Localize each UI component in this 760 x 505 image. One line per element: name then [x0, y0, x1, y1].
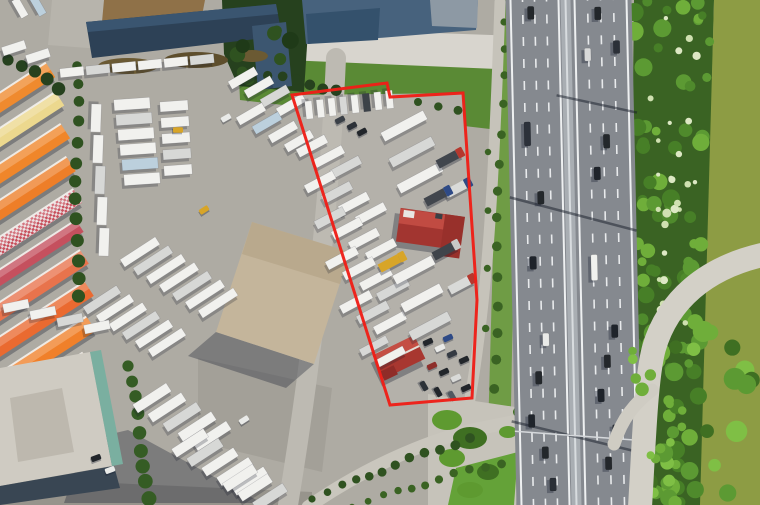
hedge-tree	[73, 115, 84, 126]
hedge-tree	[421, 482, 429, 490]
vehicle-body	[594, 167, 601, 180]
hedge-tree	[308, 495, 315, 502]
highway-vehicle	[602, 457, 612, 472]
highway-vehicle	[608, 325, 618, 340]
hedge-tree	[135, 459, 149, 473]
vehicle-body	[594, 7, 601, 20]
tree	[663, 475, 675, 487]
trailer-body	[99, 228, 110, 256]
highway-vehicle	[532, 371, 542, 386]
tree	[684, 211, 696, 223]
yard-trailer-stack	[119, 157, 158, 174]
vehicle-body	[524, 122, 531, 146]
hedge-tree	[491, 355, 501, 365]
vehicle-body	[605, 457, 612, 470]
highway-vehicle	[524, 6, 534, 21]
tree	[645, 369, 656, 380]
hedge-tree	[133, 426, 146, 439]
tree	[666, 438, 675, 447]
yard-trailer-column	[92, 163, 106, 194]
hedge-tree	[499, 100, 507, 108]
aerial-photo	[0, 0, 760, 505]
vehicle-body	[530, 256, 537, 269]
tree	[656, 207, 661, 212]
property-van-row	[370, 89, 382, 110]
tree	[668, 121, 672, 125]
highway-vehicle	[601, 355, 611, 370]
property-van-row	[313, 97, 325, 118]
tree	[641, 243, 656, 258]
tree	[681, 429, 698, 446]
vegetation-patch	[432, 410, 462, 430]
hedge-tree	[394, 487, 401, 494]
hedge-tree	[378, 468, 387, 477]
vehicle-body	[611, 325, 618, 338]
yard-trailer-stack	[157, 100, 188, 115]
highway-vehicle	[595, 389, 605, 404]
tree	[692, 52, 700, 60]
hedge-tree	[414, 98, 422, 106]
hedge-tree	[305, 80, 316, 91]
hedge-tree	[69, 175, 81, 187]
property-van-row	[336, 94, 348, 115]
trailer-body	[91, 104, 102, 132]
hedge-tree	[70, 212, 83, 225]
building-part	[435, 213, 443, 219]
tree	[647, 451, 655, 459]
tree	[653, 19, 671, 37]
aerial-photo-screenshot	[0, 0, 760, 505]
hedge-tree	[450, 440, 460, 450]
trailer-body	[161, 116, 190, 128]
tree	[648, 95, 654, 101]
vehicle-body	[604, 355, 611, 368]
highway-vehicle	[591, 167, 601, 182]
tree	[685, 81, 696, 92]
tree	[676, 151, 682, 157]
tree	[694, 237, 708, 251]
tree	[669, 340, 682, 353]
hedge-tree	[449, 469, 457, 477]
hedge-tree	[72, 272, 85, 285]
hedge-tree	[481, 463, 490, 472]
hedge-tree	[465, 433, 475, 443]
tree	[667, 426, 679, 438]
highway-vehicle	[591, 7, 601, 22]
trailer-body	[114, 97, 151, 110]
vehicle-body	[537, 191, 544, 204]
yard-trailer-stack	[161, 164, 192, 179]
highway-vehicle	[610, 40, 620, 55]
tree	[656, 173, 660, 177]
hedge-tree	[74, 96, 85, 107]
tree	[679, 123, 693, 137]
tree	[675, 47, 682, 54]
highway-vehicle	[581, 48, 591, 63]
vegetation-patch	[457, 482, 483, 498]
hedge-tree	[134, 444, 148, 458]
hedge-tree	[70, 158, 82, 170]
tree	[662, 6, 671, 15]
hedge-tree	[292, 74, 302, 84]
tree	[692, 134, 709, 151]
vehicle-body	[543, 333, 550, 346]
vehicle-body	[613, 40, 620, 53]
tree	[628, 347, 637, 356]
tree	[643, 176, 656, 189]
hedge-tree	[485, 149, 491, 155]
trailer-body	[164, 164, 193, 176]
blue-warehouse-dark-wing	[306, 8, 380, 44]
tree	[700, 424, 714, 438]
hedge-tree	[324, 488, 332, 496]
tree	[684, 181, 691, 188]
hedge-tree	[126, 376, 138, 388]
highway-vehicle	[534, 191, 544, 206]
hedge-tree	[365, 472, 374, 481]
trailer-body	[122, 157, 159, 170]
hedge-tree	[122, 360, 133, 371]
trailer-body	[118, 127, 155, 140]
highway-vehicle	[547, 478, 557, 493]
hedge-tree	[72, 254, 85, 267]
trailer-body	[97, 197, 108, 225]
vegetation-patch	[499, 426, 517, 438]
vehicle-body	[542, 447, 549, 459]
hedge-tree	[420, 448, 430, 458]
vehicle-body	[550, 478, 557, 491]
hedge-tree	[278, 71, 288, 81]
hedge-tree	[138, 474, 153, 489]
hedge-tree	[435, 445, 445, 455]
hedge-tree	[365, 498, 372, 505]
tree	[236, 39, 250, 53]
tree	[677, 422, 686, 431]
hedge-tree	[72, 290, 85, 303]
hedge-tree	[435, 475, 443, 483]
hedge-tree	[493, 328, 503, 338]
trailer-body	[120, 142, 157, 155]
tree	[662, 209, 671, 218]
vehicle-body	[584, 48, 591, 61]
hedge-tree	[338, 481, 346, 489]
tree	[628, 354, 638, 364]
property-van-row	[301, 98, 313, 119]
vehicle-body	[528, 414, 535, 427]
tree	[693, 321, 714, 342]
tree	[635, 383, 649, 397]
tree	[693, 180, 697, 184]
hedge-tree	[497, 460, 506, 469]
tree	[678, 406, 687, 415]
vehicle-body	[535, 371, 542, 384]
tree	[724, 340, 740, 356]
tree	[687, 342, 701, 356]
yard-trailer-stack	[117, 142, 156, 159]
tree	[665, 363, 684, 382]
tree	[274, 53, 286, 65]
tree	[637, 274, 650, 287]
hedge-tree	[352, 475, 360, 483]
yard-trailer-stack	[115, 127, 154, 144]
tree	[702, 73, 711, 82]
tree	[657, 277, 662, 282]
tree	[655, 443, 665, 453]
tree	[649, 266, 660, 277]
tree	[698, 11, 706, 19]
tree	[676, 0, 691, 15]
highway-vehicle	[527, 256, 537, 271]
tree	[681, 462, 699, 480]
yard-trailer-stack	[160, 148, 191, 163]
tree	[684, 359, 693, 368]
highway-vehicle	[525, 414, 535, 429]
tree	[654, 43, 663, 52]
tree	[637, 137, 649, 149]
vehicle-body	[598, 389, 605, 402]
hedge-tree	[454, 106, 463, 115]
hedge-tree	[465, 465, 474, 474]
blue-warehouse-light-wing	[430, 0, 478, 28]
yard-trailer-column	[88, 101, 102, 132]
hedge-tree	[73, 79, 83, 89]
tree	[638, 257, 647, 266]
tree	[631, 373, 641, 383]
hedge-tree	[485, 207, 492, 214]
hedge-tree	[41, 73, 54, 86]
tree	[656, 138, 661, 143]
vehicle-body	[527, 6, 534, 19]
tree	[685, 118, 692, 125]
trailer-body	[124, 172, 161, 185]
vehicle-body	[591, 254, 598, 280]
tree	[690, 387, 707, 404]
trailer-body	[95, 166, 106, 194]
vehicle-body	[603, 134, 610, 148]
tree	[662, 250, 668, 256]
property-van-row	[359, 91, 371, 112]
hedge-tree	[497, 130, 506, 139]
hedge-tree	[482, 325, 489, 332]
hedge-tree	[493, 272, 503, 282]
highway-vehicle	[540, 333, 550, 348]
car-body	[173, 127, 183, 133]
hedge-tree	[492, 242, 502, 252]
yard-trailer-column	[90, 132, 104, 163]
trailer-body	[163, 148, 192, 160]
tree	[665, 400, 673, 408]
hedge-tree	[434, 102, 442, 110]
tree	[686, 35, 693, 42]
tree	[708, 459, 721, 472]
hedge-tree	[52, 82, 65, 95]
tree	[638, 287, 655, 304]
property-van-row	[347, 92, 359, 113]
hedge-tree	[71, 234, 84, 247]
highway-vehicle	[600, 134, 610, 150]
yard-trailer-column	[94, 194, 108, 225]
tree	[668, 176, 673, 181]
tree	[664, 16, 668, 20]
hedge-tree	[391, 461, 400, 470]
tree	[705, 37, 714, 46]
trailer-body	[116, 112, 153, 125]
trailer-body	[160, 100, 189, 112]
hedge-tree	[489, 384, 499, 394]
hedge-tree	[484, 265, 491, 272]
highway-vehicle	[521, 122, 531, 148]
hedge-tree	[405, 453, 414, 462]
car	[172, 127, 183, 134]
hedge-tree	[495, 160, 504, 169]
hedge-tree	[69, 192, 82, 205]
hedge-tree	[72, 137, 84, 149]
tree	[737, 375, 756, 394]
tree	[687, 481, 704, 498]
yard-trailer-stack	[113, 112, 152, 129]
tree	[661, 221, 668, 228]
highway-vehicle	[588, 254, 598, 282]
tree	[282, 32, 299, 49]
tree	[652, 127, 661, 136]
hedge-tree	[408, 485, 416, 493]
tree	[683, 320, 688, 325]
property-van-row	[324, 95, 336, 116]
hedge-tree	[380, 491, 387, 498]
hedge-tree	[493, 302, 503, 312]
hedge-tree	[29, 65, 41, 77]
yard-trailer-column	[96, 225, 110, 256]
hedge-tree	[492, 213, 501, 222]
tree	[726, 421, 747, 442]
tree	[674, 200, 681, 207]
tree	[634, 58, 652, 76]
tree	[272, 25, 282, 35]
trailer-body	[93, 135, 104, 163]
yard-trailer-stack	[121, 172, 160, 189]
yard-trailer-stack	[111, 97, 150, 114]
tree	[719, 484, 736, 501]
hedge-tree	[493, 186, 502, 195]
